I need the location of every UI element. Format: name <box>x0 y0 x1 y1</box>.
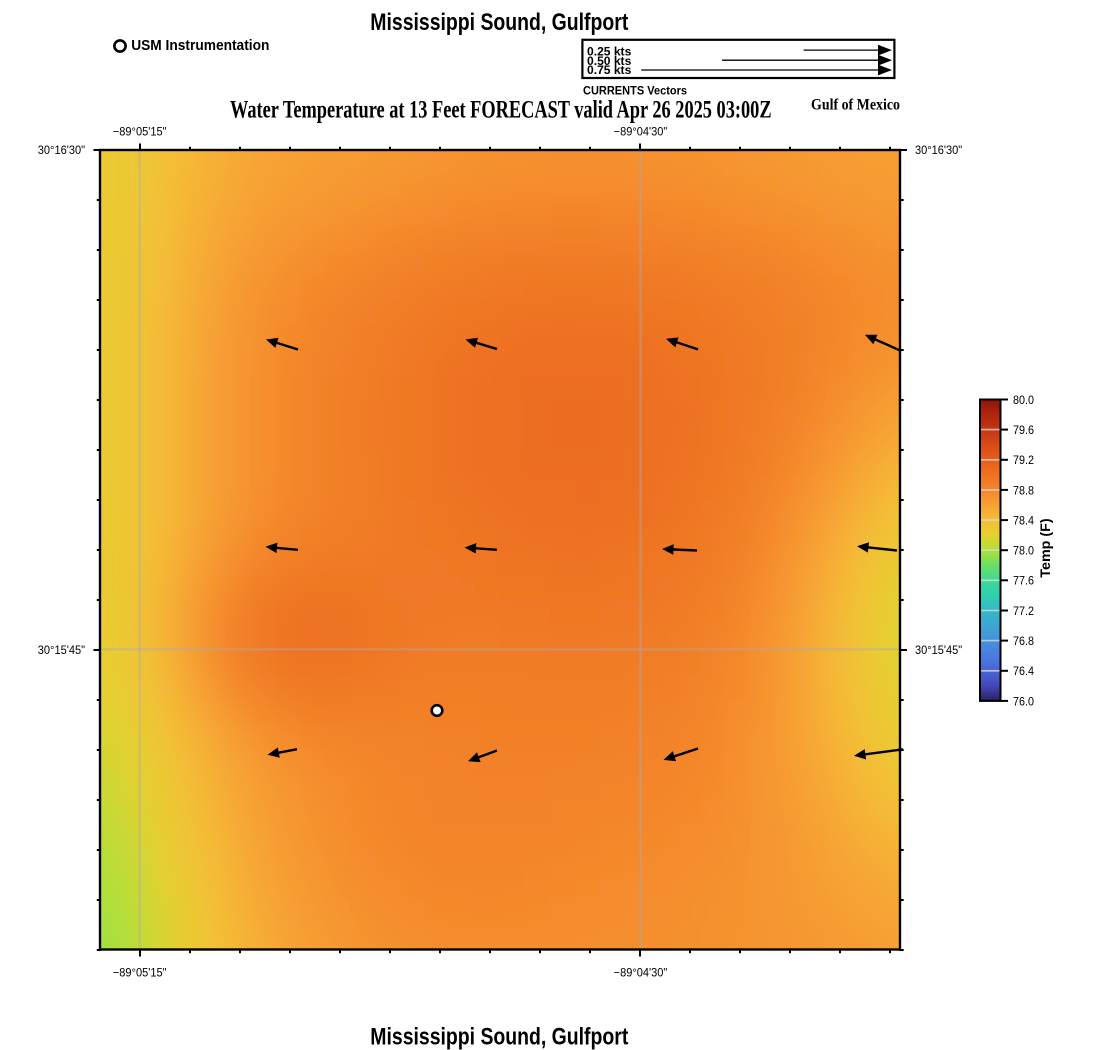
svg-text:79.6: 79.6 <box>1013 423 1034 437</box>
svg-text:79.2: 79.2 <box>1013 453 1034 467</box>
svg-text:78.8: 78.8 <box>1013 483 1034 497</box>
svg-text:Mississippi Sound, Gulfport: Mississippi Sound, Gulfport <box>370 9 628 36</box>
svg-text:Gulf of Mexico: Gulf of Mexico <box>811 97 900 114</box>
svg-text:−89°05'15": −89°05'15" <box>113 965 167 979</box>
svg-text:Mississippi Sound, Gulfport: Mississippi Sound, Gulfport <box>370 1023 628 1050</box>
svg-text:Water Temperature at 13 Feet F: Water Temperature at 13 Feet FORECAST va… <box>230 96 772 123</box>
svg-text:30°15'45": 30°15'45" <box>915 643 962 657</box>
svg-text:78.4: 78.4 <box>1013 514 1034 528</box>
svg-text:USM Instrumentation: USM Instrumentation <box>131 38 269 54</box>
svg-text:Temp (F): Temp (F) <box>1038 518 1053 577</box>
svg-text:30°16'30": 30°16'30" <box>915 143 962 157</box>
svg-text:80.0: 80.0 <box>1013 393 1034 407</box>
svg-text:76.8: 76.8 <box>1013 634 1034 648</box>
svg-text:−89°04'30": −89°04'30" <box>614 965 668 979</box>
svg-text:77.2: 77.2 <box>1013 604 1034 618</box>
svg-text:0.75 kts: 0.75 kts <box>587 65 631 77</box>
svg-text:CURRENTS Vectors: CURRENTS Vectors <box>583 83 687 97</box>
svg-text:30°15'45": 30°15'45" <box>38 643 85 657</box>
svg-text:76.4: 76.4 <box>1013 664 1034 678</box>
svg-text:30°16'30": 30°16'30" <box>38 143 85 157</box>
svg-text:78.0: 78.0 <box>1013 544 1034 558</box>
svg-text:76.0: 76.0 <box>1013 694 1034 708</box>
svg-text:−89°05'15": −89°05'15" <box>113 124 167 138</box>
svg-text:−89°04'30": −89°04'30" <box>614 124 668 138</box>
svg-text:77.6: 77.6 <box>1013 574 1034 588</box>
